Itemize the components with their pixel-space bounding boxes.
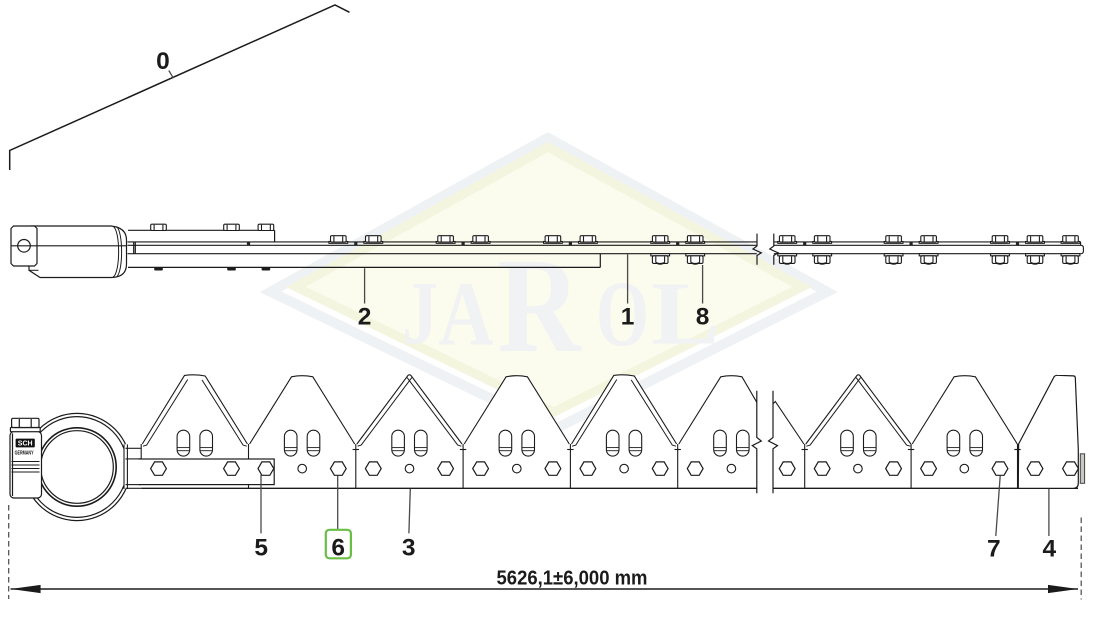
- svg-text:A: A: [439, 264, 494, 365]
- svg-text:8: 8: [696, 303, 710, 330]
- svg-text:J: J: [402, 264, 438, 363]
- svg-text:L: L: [651, 265, 720, 364]
- svg-text:1: 1: [621, 303, 635, 330]
- svg-text:GERMANY: GERMANY: [15, 451, 34, 457]
- svg-text:5: 5: [254, 534, 268, 561]
- svg-text:2: 2: [358, 303, 372, 330]
- svg-text:7: 7: [987, 536, 1001, 563]
- svg-text:SCH: SCH: [18, 441, 33, 448]
- svg-text:4: 4: [1042, 536, 1056, 563]
- svg-text:5626,1±6,000 mm: 5626,1±6,000 mm: [497, 566, 648, 589]
- svg-text:3: 3: [402, 535, 416, 562]
- svg-text:6: 6: [331, 535, 345, 562]
- svg-text:0: 0: [156, 48, 170, 75]
